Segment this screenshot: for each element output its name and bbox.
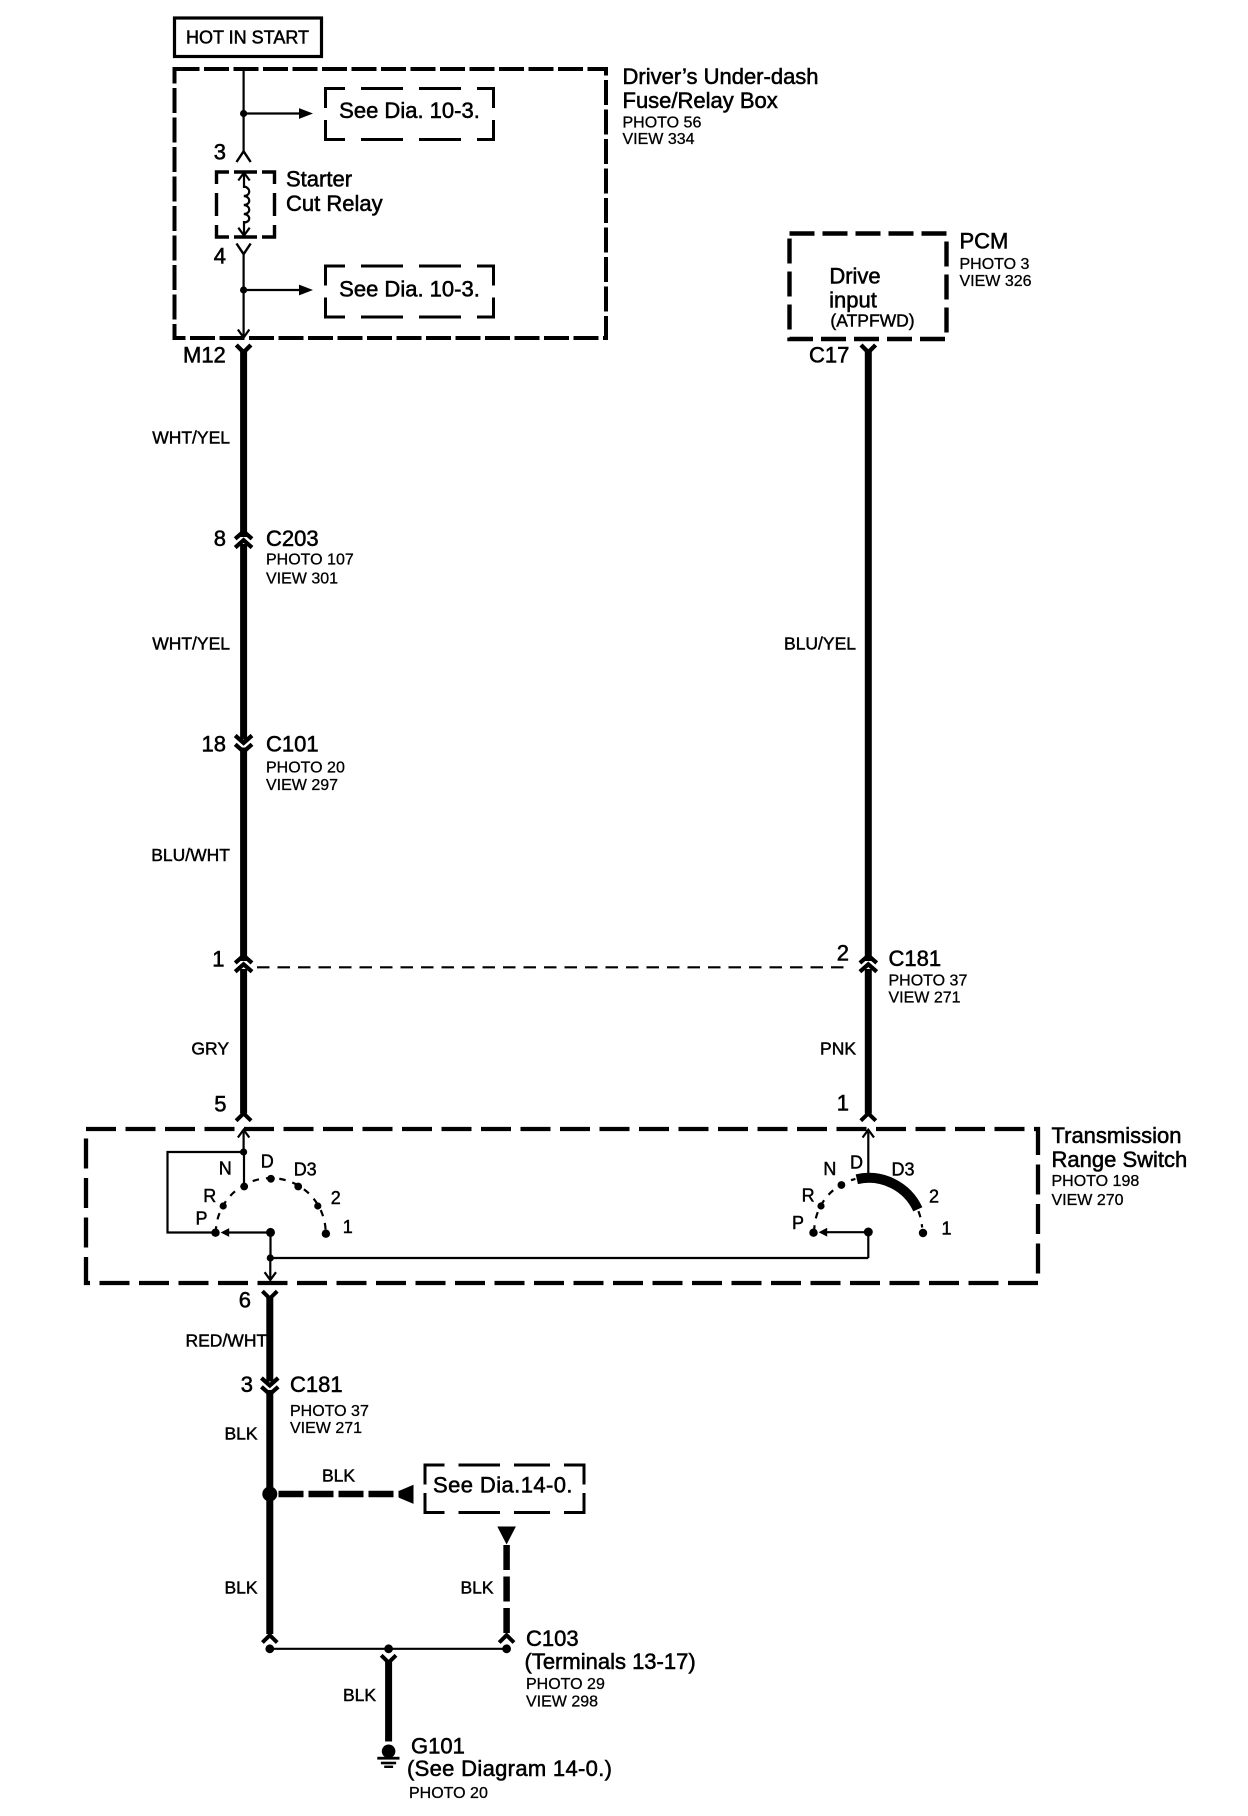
svg-text:18: 18 xyxy=(202,732,226,757)
svg-text:1: 1 xyxy=(837,1091,849,1116)
svg-text:R: R xyxy=(802,1186,815,1206)
svg-text:HOT IN START: HOT IN START xyxy=(186,27,309,47)
svg-text:3: 3 xyxy=(214,140,226,165)
svg-text:D3: D3 xyxy=(892,1160,915,1180)
svg-text:G101: G101 xyxy=(411,1734,465,1759)
svg-text:Transmission: Transmission xyxy=(1052,1123,1182,1148)
svg-text:BLU/WHT: BLU/WHT xyxy=(151,845,230,865)
svg-text:R: R xyxy=(203,1186,216,1206)
svg-text:input: input xyxy=(829,288,877,313)
svg-text:VIEW 298: VIEW 298 xyxy=(526,1694,598,1711)
svg-text:1: 1 xyxy=(942,1219,952,1239)
svg-text:VIEW 297: VIEW 297 xyxy=(266,777,338,794)
svg-text:PNK: PNK xyxy=(820,1039,856,1059)
svg-text:WHT/YEL: WHT/YEL xyxy=(152,427,230,447)
svg-text:BLK: BLK xyxy=(322,1466,355,1486)
svg-text:2: 2 xyxy=(837,941,849,966)
svg-text:VIEW 326: VIEW 326 xyxy=(960,273,1032,290)
svg-text:3: 3 xyxy=(241,1372,253,1397)
svg-text:BLU/YEL: BLU/YEL xyxy=(784,633,856,653)
svg-text:See Dia.14-0.: See Dia.14-0. xyxy=(433,1473,573,1498)
svg-text:VIEW 271: VIEW 271 xyxy=(889,990,961,1007)
svg-text:PHOTO 29: PHOTO 29 xyxy=(526,1676,605,1693)
svg-text:C181: C181 xyxy=(290,1372,343,1397)
svg-text:Starter: Starter xyxy=(286,167,352,192)
svg-text:Driver’s Under-dash: Driver’s Under-dash xyxy=(623,64,819,89)
svg-text:C17: C17 xyxy=(809,343,849,368)
svg-text:PHOTO 37: PHOTO 37 xyxy=(290,1403,369,1420)
svg-text:Drive: Drive xyxy=(829,264,880,289)
svg-text:(See Diagram 14-0.): (See Diagram 14-0.) xyxy=(407,1756,612,1781)
svg-text:PHOTO 20: PHOTO 20 xyxy=(409,1785,488,1802)
svg-text:M12: M12 xyxy=(183,343,226,368)
svg-text:WHT/YEL: WHT/YEL xyxy=(152,633,230,653)
svg-text:BLK: BLK xyxy=(225,1424,258,1444)
svg-text:Cut Relay: Cut Relay xyxy=(286,191,383,216)
svg-text:PHOTO 37: PHOTO 37 xyxy=(889,973,968,990)
svg-text:4: 4 xyxy=(214,244,226,269)
svg-text:1: 1 xyxy=(212,947,224,972)
svg-text:C103: C103 xyxy=(526,1626,579,1651)
svg-text:PHOTO 3: PHOTO 3 xyxy=(960,256,1030,273)
svg-text:VIEW 270: VIEW 270 xyxy=(1052,1192,1124,1209)
svg-text:PHOTO 56: PHOTO 56 xyxy=(623,115,702,132)
svg-text:VIEW 334: VIEW 334 xyxy=(623,131,695,148)
svg-text:Range Switch: Range Switch xyxy=(1052,1147,1188,1172)
svg-text:GRY: GRY xyxy=(191,1039,229,1059)
svg-text:RED/WHT: RED/WHT xyxy=(186,1331,268,1351)
svg-text:(Terminals 13-17): (Terminals 13-17) xyxy=(525,1649,696,1674)
svg-text:PHOTO 107: PHOTO 107 xyxy=(266,552,354,569)
svg-text:2: 2 xyxy=(331,1188,341,1208)
svg-text:8: 8 xyxy=(214,526,226,551)
svg-text:(ATPFWD): (ATPFWD) xyxy=(830,311,914,331)
svg-text:D3: D3 xyxy=(294,1160,317,1180)
svg-text:BLK: BLK xyxy=(343,1685,376,1705)
svg-text:C203: C203 xyxy=(266,526,319,551)
svg-text:VIEW 271: VIEW 271 xyxy=(290,1420,362,1437)
svg-text:5: 5 xyxy=(214,1092,226,1117)
svg-text:See Dia. 10-3.: See Dia. 10-3. xyxy=(339,98,480,123)
svg-text:VIEW 301: VIEW 301 xyxy=(266,571,338,588)
svg-text:Fuse/Relay Box: Fuse/Relay Box xyxy=(623,88,778,113)
svg-text:D: D xyxy=(850,1153,863,1173)
svg-text:C101: C101 xyxy=(266,732,319,757)
svg-text:1: 1 xyxy=(343,1217,353,1237)
svg-text:P: P xyxy=(792,1213,804,1233)
svg-text:N: N xyxy=(823,1159,836,1179)
svg-text:PHOTO 198: PHOTO 198 xyxy=(1052,1173,1140,1190)
svg-text:D: D xyxy=(261,1152,274,1172)
svg-text:C181: C181 xyxy=(889,946,942,971)
svg-text:N: N xyxy=(219,1159,232,1179)
svg-text:P: P xyxy=(196,1208,208,1228)
svg-text:BLK: BLK xyxy=(461,1578,494,1598)
svg-text:See Dia. 10-3.: See Dia. 10-3. xyxy=(339,277,480,302)
svg-text:6: 6 xyxy=(239,1288,251,1313)
svg-text:2: 2 xyxy=(929,1187,939,1207)
svg-text:BLK: BLK xyxy=(225,1578,258,1598)
svg-text:PHOTO 20: PHOTO 20 xyxy=(266,760,345,777)
svg-text:PCM: PCM xyxy=(960,229,1009,254)
